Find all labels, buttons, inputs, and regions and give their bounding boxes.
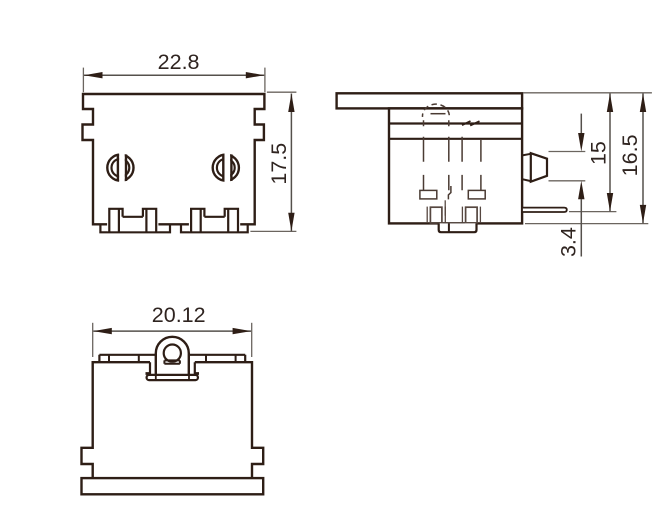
svg-text:22.8: 22.8 — [158, 50, 200, 74]
svg-text:15: 15 — [586, 141, 610, 165]
svg-text:17.5: 17.5 — [267, 143, 291, 185]
svg-text:3.4: 3.4 — [556, 227, 580, 257]
svg-text:16.5: 16.5 — [618, 134, 642, 176]
svg-text:20.12: 20.12 — [152, 303, 206, 327]
